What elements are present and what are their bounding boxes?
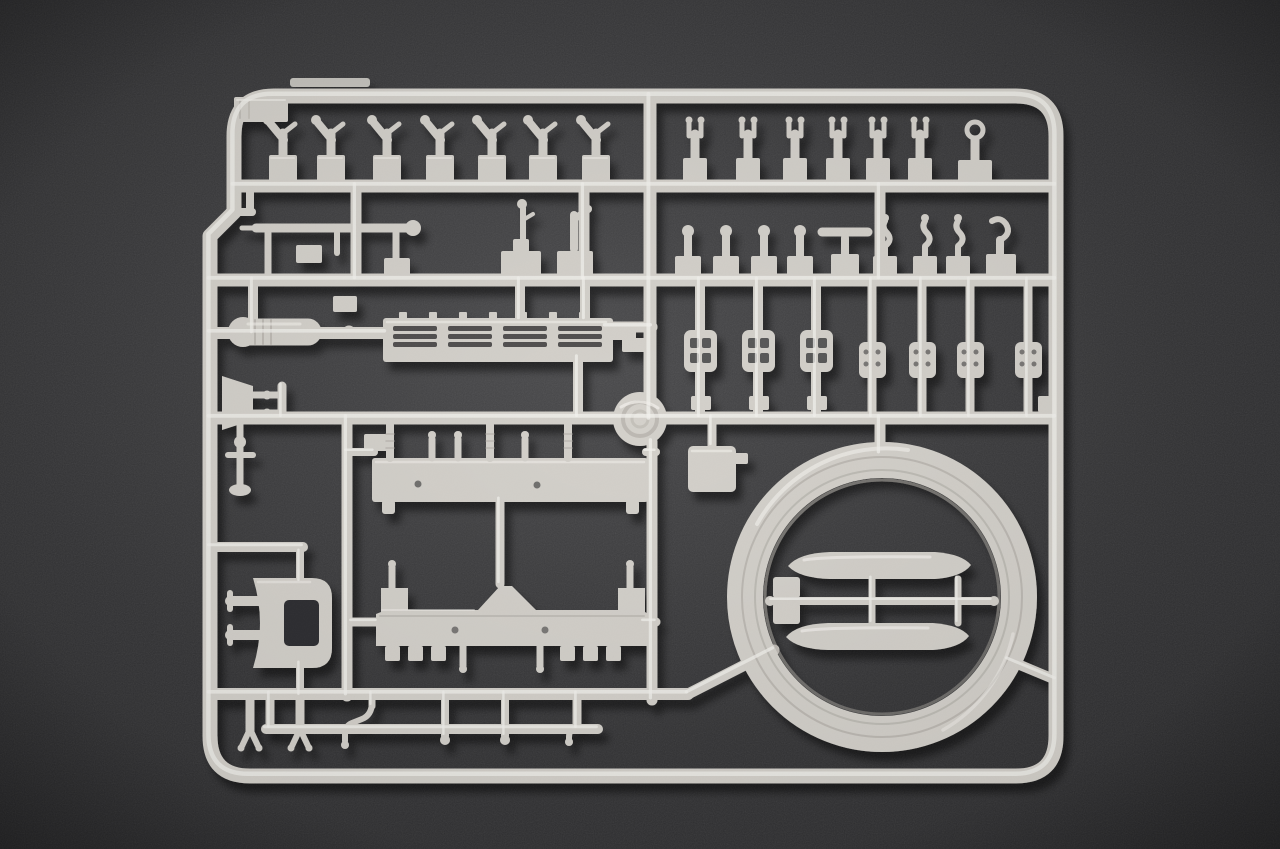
photo-vignette bbox=[0, 0, 1280, 849]
photo-canvas bbox=[0, 0, 1280, 849]
sprue-photo bbox=[0, 0, 1280, 849]
